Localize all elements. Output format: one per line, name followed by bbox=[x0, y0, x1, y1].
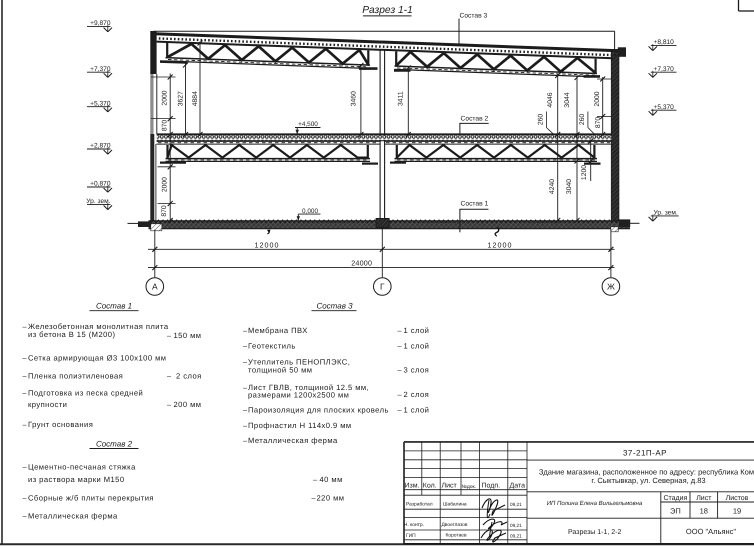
svg-text:Металлическая ферма: Металлическая ферма bbox=[28, 512, 118, 521]
svg-text:2000: 2000 bbox=[594, 91, 601, 106]
svg-text:Ж: Ж bbox=[607, 282, 615, 292]
svg-text:1 слой: 1 слой bbox=[404, 342, 430, 351]
svg-text:3044: 3044 bbox=[564, 92, 571, 107]
svg-text:Мембрана ПВХ: Мембрана ПВХ bbox=[248, 326, 308, 335]
svg-text:2000: 2000 bbox=[162, 90, 169, 105]
svg-text:Состав 2: Состав 2 bbox=[96, 439, 133, 448]
svg-text:Грунт основания: Грунт основания bbox=[28, 420, 93, 429]
svg-text:200 мм: 200 мм bbox=[174, 400, 202, 409]
svg-text:2 слоя: 2 слоя bbox=[176, 371, 202, 380]
svg-text:Пленка полиэтиленовая: Пленка полиэтиленовая bbox=[28, 371, 123, 380]
svg-text:Разработал: Разработал bbox=[406, 501, 433, 507]
svg-text:Состав 1: Состав 1 bbox=[461, 200, 489, 207]
svg-text:Подготовка из песка средней: Подготовка из песка средней bbox=[28, 389, 143, 398]
svg-text:3411: 3411 bbox=[397, 91, 404, 106]
svg-text:150 мм: 150 мм bbox=[174, 331, 202, 340]
svg-text:Коротаев: Коротаев bbox=[446, 533, 468, 539]
svg-text:12000: 12000 bbox=[255, 240, 280, 249]
svg-text:ЭП: ЭП bbox=[670, 507, 681, 516]
svg-text:24000: 24000 bbox=[351, 259, 372, 268]
svg-text:толщиной 50 мм: толщиной 50 мм bbox=[248, 366, 312, 375]
svg-text:Пароизоляция для плоских крове: Пароизоляция для плоских кровель bbox=[248, 406, 389, 415]
svg-text:09,21: 09,21 bbox=[510, 534, 522, 539]
svg-text:из бетона В 15 (М200): из бетона В 15 (М200) bbox=[28, 330, 115, 339]
svg-text:3627: 3627 bbox=[177, 91, 184, 106]
svg-text:4240: 4240 bbox=[549, 179, 556, 194]
svg-text:Г: Г bbox=[380, 282, 385, 292]
svg-text:Состав 3: Состав 3 bbox=[316, 302, 353, 311]
svg-text:4884: 4884 bbox=[192, 91, 199, 106]
svg-text:Геотекстиль: Геотекстиль bbox=[248, 342, 296, 351]
svg-text:ГИП: ГИП bbox=[406, 533, 416, 539]
svg-text:г. Сыктывкар, ул. Северная, д.: г. Сыктывкар, ул. Северная, д.83 bbox=[591, 476, 705, 485]
svg-text:Н. контр.: Н. контр. bbox=[404, 522, 424, 528]
svg-text:1 слой: 1 слой bbox=[404, 326, 430, 335]
svg-text:2 слоя: 2 слоя bbox=[404, 390, 430, 399]
svg-text:Кол.: Кол. bbox=[423, 482, 437, 489]
svg-text:А: А bbox=[152, 282, 158, 292]
svg-text:4046: 4046 bbox=[547, 92, 554, 107]
svg-text:Разрез 1-1: Разрез 1-1 bbox=[362, 5, 412, 16]
svg-text:870: 870 bbox=[595, 117, 602, 129]
svg-text:870: 870 bbox=[161, 120, 168, 132]
svg-text:крупности: крупности bbox=[28, 400, 67, 409]
svg-text:19: 19 bbox=[733, 507, 741, 516]
svg-text:Состав 3: Состав 3 bbox=[460, 12, 488, 19]
svg-text:Состав 2: Состав 2 bbox=[461, 116, 489, 123]
svg-text:№док.: №док. bbox=[462, 484, 477, 490]
svg-text:Двоеглазов: Двоеглазов bbox=[442, 522, 468, 528]
svg-text:1200: 1200 bbox=[581, 165, 588, 180]
svg-text:3460: 3460 bbox=[350, 91, 357, 106]
svg-text:Цементно-песчаная стяжка: Цементно-песчаная стяжка bbox=[28, 463, 136, 472]
svg-text:3040: 3040 bbox=[566, 179, 573, 194]
svg-text:260: 260 bbox=[579, 114, 586, 126]
svg-text:Шабалина: Шабалина bbox=[443, 501, 467, 507]
svg-text:220 мм: 220 мм bbox=[317, 493, 345, 502]
svg-text:из раствора марки М150: из раствора марки М150 bbox=[28, 475, 125, 484]
svg-text:Изм.: Изм. bbox=[405, 482, 420, 489]
svg-text:ИП Полина Елена Вильгельмовна: ИП Полина Елена Вильгельмовна bbox=[547, 500, 643, 507]
svg-text:Сетка армирующая Ø3 100х100 мм: Сетка армирующая Ø3 100х100 мм bbox=[28, 353, 166, 362]
svg-text:Подп.: Подп. bbox=[482, 482, 501, 489]
svg-text:40 мм: 40 мм bbox=[320, 475, 343, 484]
svg-text:Разрезы 1-1, 2-2: Разрезы 1-1, 2-2 bbox=[568, 529, 622, 536]
svg-text:2000: 2000 bbox=[162, 177, 169, 192]
svg-text:Дата: Дата bbox=[510, 482, 526, 489]
svg-text:1 слой: 1 слой bbox=[404, 406, 430, 415]
svg-text:260: 260 bbox=[538, 114, 545, 126]
svg-text:Металлическая ферма: Металлическая ферма bbox=[248, 436, 338, 445]
svg-text:Профнастил Н 114х0.9 мм: Профнастил Н 114х0.9 мм bbox=[248, 421, 352, 430]
svg-text:Состав 1: Состав 1 bbox=[96, 302, 132, 311]
svg-text:37-21П-АР: 37-21П-АР bbox=[623, 448, 667, 457]
svg-text:18: 18 bbox=[700, 507, 708, 516]
svg-text:870: 870 bbox=[161, 205, 168, 217]
svg-text:09,21: 09,21 bbox=[510, 523, 522, 528]
svg-text:3 слоя: 3 слоя bbox=[404, 366, 430, 375]
svg-text:Сборные ж/б плиты перекрытия: Сборные ж/б плиты перекрытия bbox=[28, 493, 154, 502]
svg-text:Листов: Листов bbox=[726, 495, 749, 502]
svg-text:Лист: Лист bbox=[696, 495, 712, 502]
svg-text:Лист: Лист bbox=[442, 482, 458, 489]
svg-text:09,21: 09,21 bbox=[510, 502, 522, 507]
svg-text:ООО "Альянс": ООО "Альянс" bbox=[686, 527, 736, 536]
svg-text:Стадия: Стадия bbox=[663, 495, 687, 502]
svg-text:12000: 12000 bbox=[488, 240, 513, 249]
svg-text:размерами 1200х2500 мм: размерами 1200х2500 мм bbox=[248, 391, 349, 400]
